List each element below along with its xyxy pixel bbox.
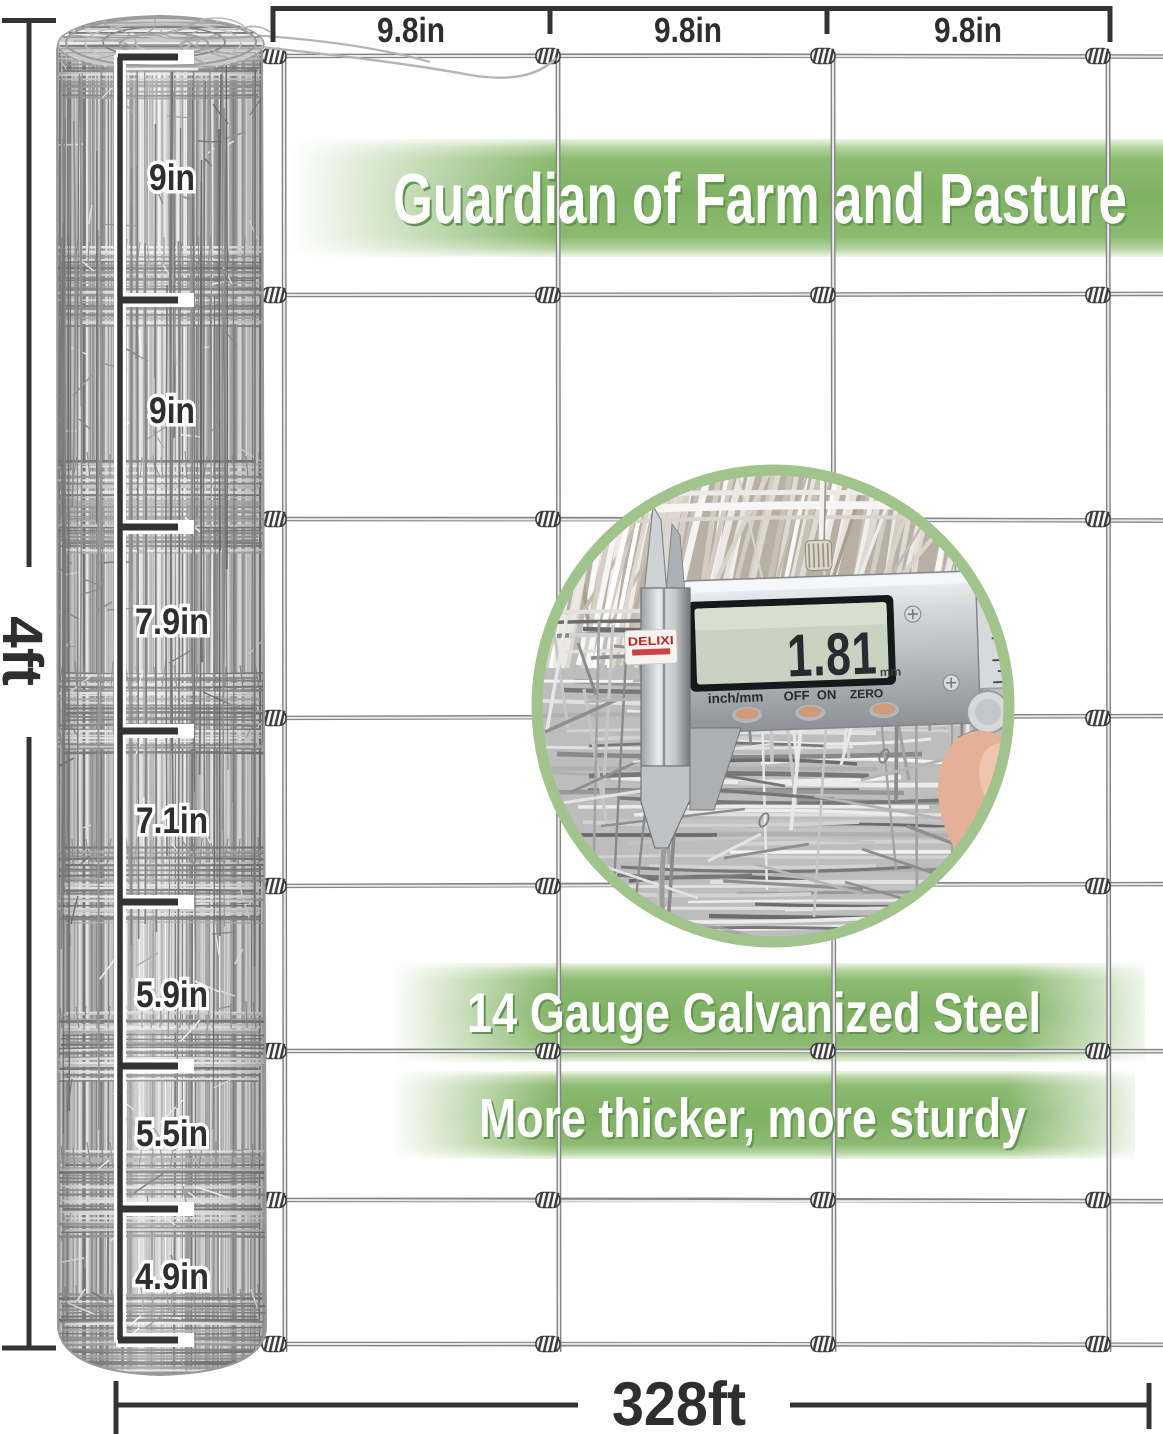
svg-text:Guardian of Farm and Pasture: Guardian of Farm and Pasture xyxy=(393,160,1127,239)
svg-text:9.8in: 9.8in xyxy=(654,11,722,50)
svg-text:14 Gauge Galvanized Steel: 14 Gauge Galvanized Steel xyxy=(467,981,1041,1044)
svg-text:9in: 9in xyxy=(149,157,195,198)
svg-text:DELIXI: DELIXI xyxy=(628,633,674,649)
svg-text:More thicker, more sturdy: More thicker, more sturdy xyxy=(479,1087,1026,1149)
svg-text:4.9in: 4.9in xyxy=(135,1256,209,1297)
svg-text:inch/mm: inch/mm xyxy=(708,689,764,706)
svg-text:7.9in: 7.9in xyxy=(135,601,209,642)
svg-text:9in: 9in xyxy=(149,390,195,431)
svg-text:9.8in: 9.8in xyxy=(934,11,1002,50)
svg-text:5.9in: 5.9in xyxy=(136,974,208,1015)
svg-text:9.8in: 9.8in xyxy=(377,11,445,50)
svg-text:ZERO: ZERO xyxy=(850,686,884,701)
svg-text:328ft: 328ft xyxy=(612,1370,746,1434)
svg-text:5.5in: 5.5in xyxy=(136,1113,208,1154)
svg-text:1.81: 1.81 xyxy=(786,619,878,689)
svg-text:ON: ON xyxy=(817,687,837,703)
svg-text:mm: mm xyxy=(880,665,902,680)
svg-text:7.1in: 7.1in xyxy=(136,800,208,841)
svg-text:4ft: 4ft xyxy=(0,616,54,686)
svg-text:OFF: OFF xyxy=(783,688,810,704)
